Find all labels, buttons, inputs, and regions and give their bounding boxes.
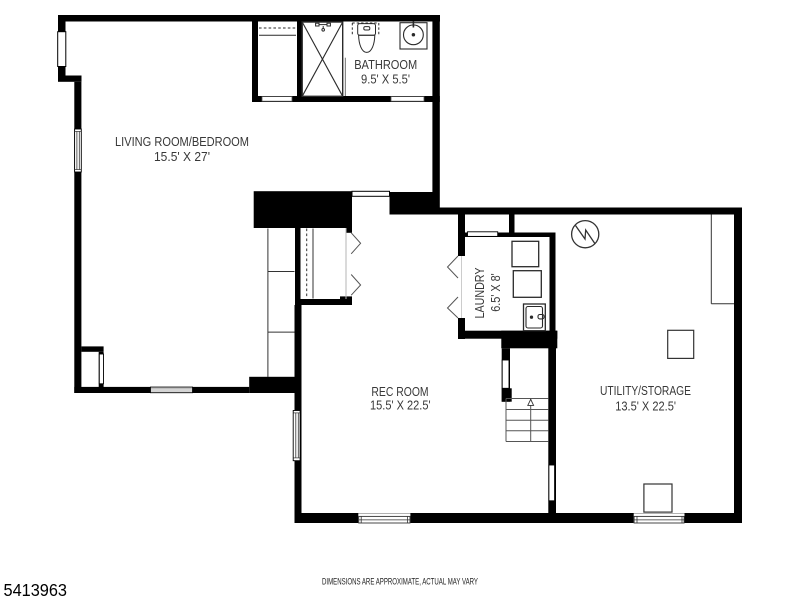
svg-text:13.5' X 22.5': 13.5' X 22.5' (615, 400, 676, 414)
svg-text:9.5' X 5.5': 9.5' X 5.5' (361, 73, 410, 87)
svg-text:LAUNDRY: LAUNDRY (473, 267, 487, 319)
svg-text:UTILITY/STORAGE: UTILITY/STORAGE (600, 384, 691, 398)
svg-text:15.5' X 22.5': 15.5' X 22.5' (370, 399, 431, 413)
svg-text:BATHROOM: BATHROOM (354, 58, 417, 72)
svg-text:LIVING ROOM/BEDROOM: LIVING ROOM/BEDROOM (115, 135, 249, 149)
svg-text:REC ROOM: REC ROOM (371, 385, 428, 399)
svg-text:15.5' X 27': 15.5' X 27' (154, 150, 210, 164)
svg-text:5413963: 5413963 (4, 580, 68, 600)
svg-text:6.5' X 8': 6.5' X 8' (489, 273, 503, 312)
svg-text:DIMENSIONS ARE APPROXIMATE, AC: DIMENSIONS ARE APPROXIMATE, ACTUAL MAY V… (322, 576, 478, 586)
